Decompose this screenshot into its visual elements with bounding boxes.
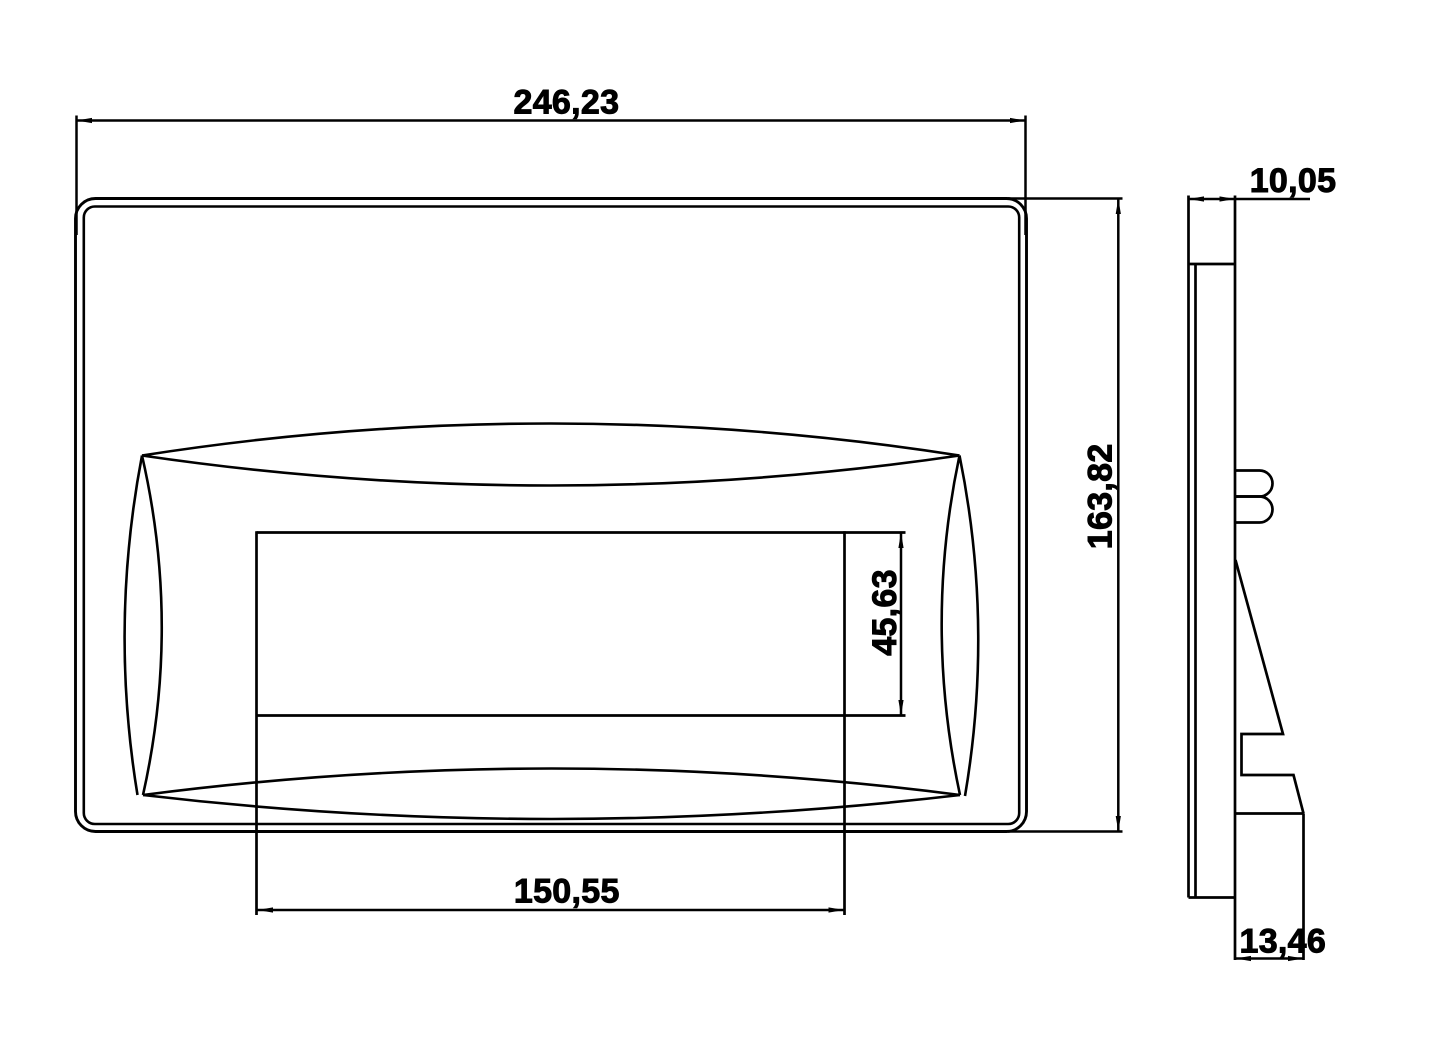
svg-text:45,63: 45,63 — [866, 569, 904, 656]
svg-text:246,23: 246,23 — [514, 84, 620, 122]
svg-text:150,55: 150,55 — [514, 873, 620, 911]
svg-text:13,46: 13,46 — [1240, 923, 1327, 961]
svg-text:163,82: 163,82 — [1082, 443, 1120, 549]
svg-text:10,05: 10,05 — [1250, 162, 1337, 200]
